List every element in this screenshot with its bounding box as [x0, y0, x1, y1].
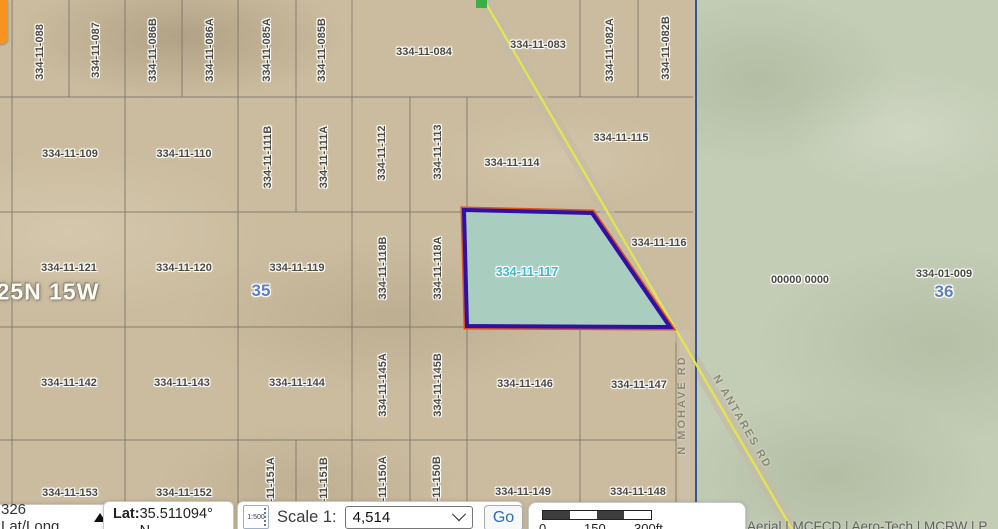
go-button[interactable]: Go — [484, 505, 523, 529]
scalebar-tick-start: 0 — [539, 521, 546, 529]
township-label: 25N 15W — [0, 279, 99, 306]
scalebar-ticks: 0 150 300ft — [542, 521, 692, 529]
sidebar-collapse-tab[interactable] — [0, 0, 8, 44]
parcel-label: 334-11-114 — [484, 157, 539, 169]
parcel-label: 334-11-144 — [269, 377, 325, 389]
scalebar-panel: 0 150 300ft — [528, 502, 746, 529]
scale-select-dropdown[interactable]: 4,514 — [345, 506, 473, 529]
parcel-label: 334-11-085B — [316, 18, 328, 82]
scale-panel: 1:500 Scale 1: 4,514 — [237, 501, 523, 529]
parcel-label: 334-11-142 — [41, 377, 97, 389]
parcel-label: 334-11-086A — [204, 18, 216, 82]
parcel-label: 334-11-147 — [611, 379, 667, 391]
parcel-label: 334-11-110 — [156, 148, 211, 160]
parcel-label: 334-11-084 — [396, 46, 452, 58]
latitude-row: Lat: 35.511094° N — [113, 506, 226, 529]
parcel-label: 334-11-145B — [432, 353, 444, 417]
lat-label: Lat: — [113, 506, 140, 529]
latlong-toggle-label: 326 Lat/Long — [1, 501, 88, 529]
scale-icon-text: 1:500 — [247, 514, 265, 521]
go-button-label: Go — [493, 509, 514, 527]
parcel-label: 334-11-113 — [432, 124, 444, 179]
parcel-label: 334-11-152 — [156, 487, 212, 499]
parcel-label: 334-11-121 — [41, 262, 97, 274]
parcel-label: 334-11-120 — [156, 262, 212, 274]
lat-value: 35.511094° N — [140, 506, 226, 529]
map-attribution: Aerial | MCFCD | Aero-Tech | MCRW | P — [747, 519, 987, 529]
scale-ruler-icon[interactable]: 1:500 — [243, 505, 269, 529]
section-label: 35 — [252, 281, 271, 301]
parcel-label: 334-11-118B — [377, 237, 389, 300]
latlong-toggle-panel[interactable]: 326 Lat/Long — [0, 504, 107, 529]
parcel-label: 334-11-112 — [376, 125, 388, 180]
parcel-label: 334-11-086B — [147, 18, 159, 82]
parcel-label: 334-11-111B — [262, 126, 274, 188]
parcel-label: 334-11-115 — [593, 132, 648, 144]
chevron-down-icon — [452, 507, 466, 521]
highlight-label[interactable]: 334-11-117 — [496, 265, 559, 279]
coordinates-panel: Lat: 35.511094° N Long: 113.9534673° W — [103, 501, 234, 529]
parcel-label: 334-11-088 — [34, 24, 46, 80]
parcel-label: 334-11-118A — [432, 237, 444, 300]
scalebar-graphic — [542, 510, 652, 520]
scalebar-tick-end: 300ft — [634, 521, 663, 529]
parcel-label: 334-11-146 — [497, 378, 553, 390]
section-label: 36 — [935, 282, 954, 302]
parcel-label: 334-11-143 — [154, 377, 210, 389]
parcel-label: 334-11-119 — [269, 262, 324, 274]
parcel-label: 334-11-083 — [510, 39, 566, 51]
parcel-label: 334-11-085A — [261, 18, 273, 82]
parcel-label: 334-11-148 — [610, 486, 666, 498]
parcel-label: 334-11-082A — [604, 18, 616, 82]
parcel-map-app: 334-11-088334-11-087334-11-086B334-11-08… — [0, 0, 998, 529]
parcel-label: 334-11-109 — [42, 148, 98, 160]
parcel-label: 334-11-145A — [377, 353, 389, 417]
scale-label: Scale 1: — [277, 508, 337, 527]
scale-select-value: 4,514 — [353, 509, 391, 526]
parcel-label: 334-11-082B — [660, 16, 672, 80]
road-label: N MOHAVE RD — [676, 355, 688, 454]
parcel-label: 334-11-111A — [318, 126, 330, 188]
parcel-label: 334-11-116 — [631, 237, 686, 249]
parcel-label: 00000 0000 — [771, 274, 829, 286]
parcel-label: 334-11-149 — [495, 486, 551, 498]
parcel-label: 334-01-009 — [916, 268, 972, 280]
scalebar-tick-mid: 150 — [584, 521, 606, 529]
parcel-label: 334-11-153 — [42, 487, 98, 499]
parcel-label: 334-11-087 — [90, 22, 102, 78]
map-point-marker — [476, 0, 487, 8]
